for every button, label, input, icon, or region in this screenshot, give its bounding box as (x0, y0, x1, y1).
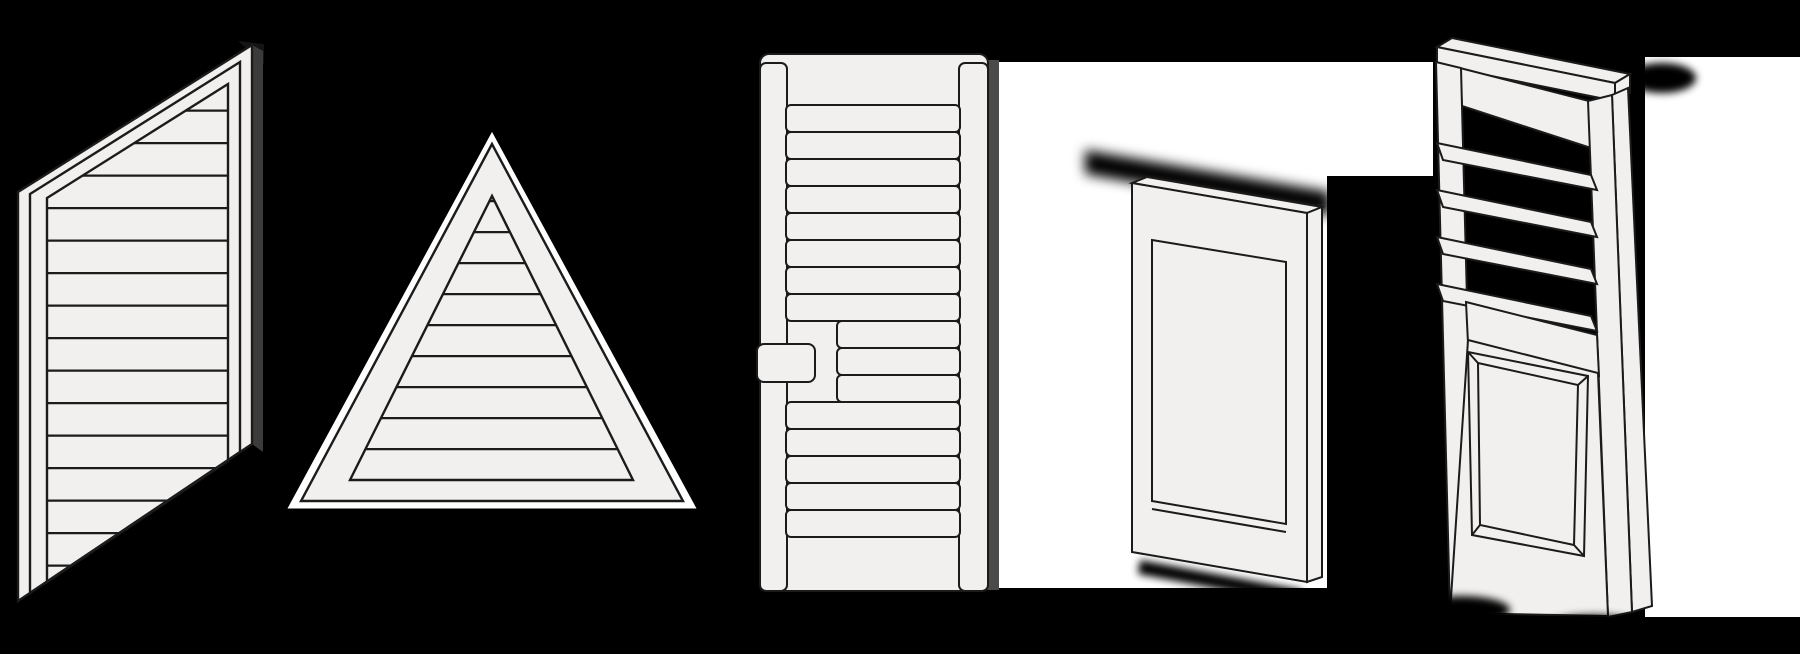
triangle-louvered-shutter-illustration (290, 135, 694, 507)
shutter3-step-louvers (837, 321, 960, 402)
shutter-illustrations-layer (0, 0, 1800, 654)
angled-louvered-shutter-illustration (18, 41, 264, 601)
louver-slat (786, 267, 960, 294)
open-louver-raised-panel-shutter-illustration (1414, 23, 1696, 639)
louver-slat (786, 159, 960, 186)
shutter5-bottom-right-shadow (1544, 615, 1644, 639)
louver-slat (786, 186, 960, 213)
louver-slat (837, 348, 960, 375)
flat-panel-shutter-illustration (1085, 150, 1330, 604)
louver-slat (786, 213, 960, 240)
louver-slat (786, 456, 960, 483)
shutter5-cap-side-shadow (1628, 63, 1696, 93)
louver-slat (786, 132, 960, 159)
shutter3-tilt-knob (757, 344, 815, 382)
shutter5-cap-top-shadow (1475, 23, 1615, 41)
louver-slat (786, 429, 960, 456)
louver-slat (786, 294, 960, 321)
shutter3-right-stile (959, 63, 988, 591)
stepped-divider-louvered-shutter-illustration (757, 54, 999, 591)
shutter3-lower-louvers (786, 402, 960, 537)
shutter1-side-depth-edge (252, 45, 263, 452)
shutter5-bottom-left-shadow (1414, 596, 1510, 624)
louver-slat (837, 375, 960, 402)
louver-slat (786, 483, 960, 510)
louver-slat (786, 105, 960, 132)
louver-slat (786, 510, 960, 537)
shutter3-upper-louvers (786, 105, 960, 321)
shutter4-side-face (1307, 207, 1322, 582)
shutter3-left-stile (760, 63, 787, 591)
specialty-shutter-shapes-canvas (0, 0, 1800, 654)
louver-slat (786, 402, 960, 429)
louver-slat (786, 240, 960, 267)
shutter5-bottom-section (1450, 340, 1608, 616)
louver-slat (837, 321, 960, 348)
